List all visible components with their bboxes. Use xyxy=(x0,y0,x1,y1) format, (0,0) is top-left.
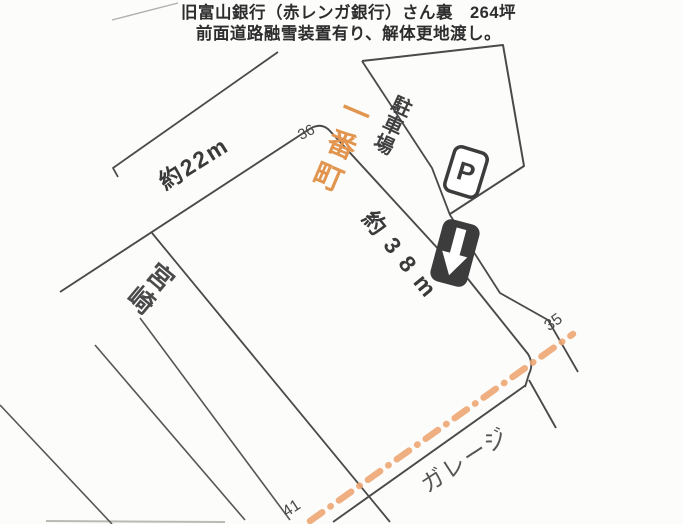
map-canvas: P xyxy=(0,0,683,524)
plot-map: P 旧富山銀行（赤レンガ銀行）さん裏 264坪 前面道路融雪装置有り、解体更地渡… xyxy=(0,0,683,524)
header-line-1: 旧富山銀行（赤レンガ銀行）さん裏 264坪 xyxy=(14,3,683,24)
header-line-2: 前面道路融雪装置有り、解体更地渡し。 xyxy=(14,24,683,45)
plot-west-boundary-line xyxy=(152,233,390,522)
scan-edge-line xyxy=(46,521,225,522)
neighbor-lot-line-2 xyxy=(95,345,245,520)
header-note: 旧富山銀行（赤レンガ銀行）さん裏 264坪 前面道路融雪装置有り、解体更地渡し。 xyxy=(0,3,683,45)
neighbor-lot-line-1 xyxy=(140,318,290,520)
road-dash-dot-marking xyxy=(310,334,573,521)
parking-sign-icon: P xyxy=(443,145,489,199)
neighbor-lot-line-3 xyxy=(0,405,112,524)
road-bend-continuation-line xyxy=(529,380,556,428)
